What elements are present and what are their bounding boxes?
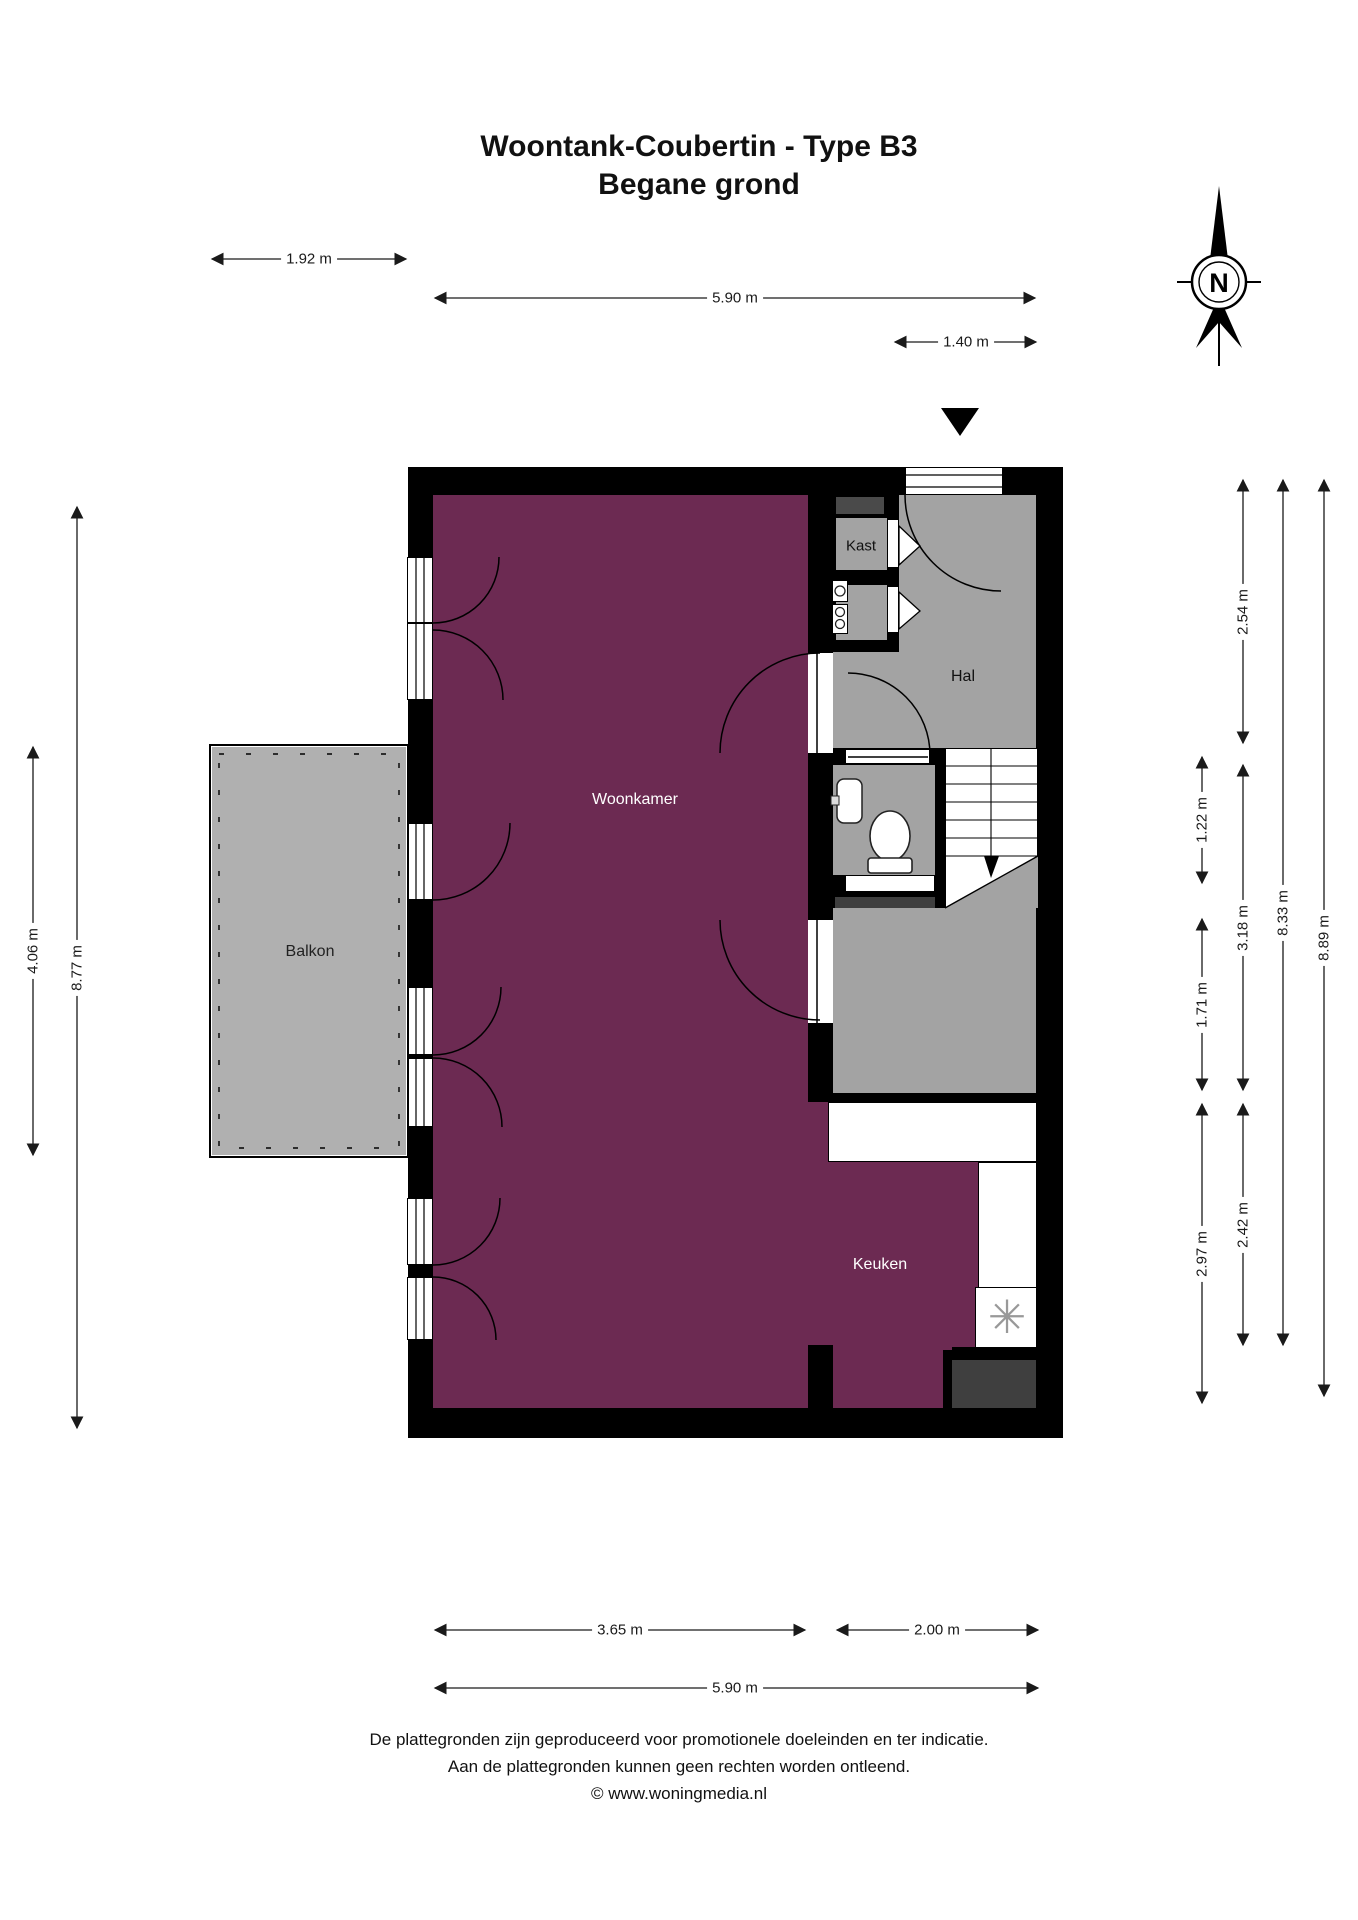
dim-bottom-2: 2.00 m: [909, 1622, 965, 1639]
hal-floor-lower: [833, 908, 1038, 1093]
window-2: [407, 623, 433, 700]
kast-shaft: [836, 497, 884, 514]
entrance-opening: [905, 467, 1003, 495]
dim-top-1: 1.92 m: [281, 251, 337, 268]
wc-duct-bar: [835, 897, 935, 908]
kitchen-counter-top: [828, 1102, 1037, 1162]
footer-copyright: © www.woningmedia.nl: [0, 1780, 1358, 1807]
window-5: [407, 1058, 433, 1127]
dim-right-8-89: 8.89 m: [1316, 910, 1333, 966]
window-4: [407, 987, 433, 1055]
hal-floor-upper: [899, 495, 1038, 748]
balkon-label: Balkon: [286, 943, 335, 961]
woonkamer-floor: [433, 495, 808, 1408]
dim-right-1-22: 1.22 m: [1194, 792, 1211, 848]
dim-top-3: 1.40 m: [938, 334, 994, 351]
wc-floor: [833, 765, 935, 875]
compass-letter: N: [1209, 268, 1229, 298]
meter-box-2: [832, 604, 848, 634]
window-1: [407, 557, 433, 623]
page-subtitle: Begane grond: [40, 168, 1358, 202]
kast-label: Kast: [846, 538, 876, 555]
meterkast-door: [887, 586, 899, 633]
dim-left-1: 4.06 m: [25, 923, 42, 979]
wc-shelf: [845, 875, 935, 892]
entrance-arrow-icon: [941, 408, 979, 436]
door-woonkamer-overloop: [808, 920, 833, 1023]
dim-right-8-33: 8.33 m: [1275, 885, 1292, 941]
meter-box-1: [832, 580, 848, 602]
window-7: [407, 1277, 433, 1340]
kitchen-hob: [975, 1287, 1037, 1348]
wall-hob-bottom: [952, 1347, 1036, 1360]
dim-right-2-97: 2.97 m: [1194, 1226, 1211, 1282]
dim-left-2: 8.77 m: [69, 940, 86, 996]
door-woonkamer-hal: [808, 653, 833, 753]
window-6: [407, 1198, 433, 1265]
compass-icon: N: [1177, 186, 1261, 366]
page-title: Woontank-Coubertin - Type B3: [40, 130, 1358, 164]
dim-right-2-54: 2.54 m: [1235, 584, 1252, 640]
dim-right-1-71: 1.71 m: [1194, 977, 1211, 1033]
floorplan-page: Woontank-Coubertin - Type B3 Begane gron…: [0, 0, 1358, 1920]
wall-stub-keuken: [808, 1345, 833, 1408]
woonkamer-label: Woonkamer: [592, 791, 678, 809]
footer-disclaimer-line1: De plattegronden zijn geproduceerd voor …: [0, 1726, 1358, 1753]
hal-label: Hal: [951, 668, 975, 686]
dim-top-2: 5.90 m: [707, 290, 763, 307]
dim-bottom-3: 5.90 m: [707, 1680, 763, 1697]
dim-right-2-42: 2.42 m: [1235, 1197, 1252, 1253]
wall-bottom: [408, 1408, 1063, 1438]
dim-right-3-18: 3.18 m: [1235, 900, 1252, 956]
wc-door: [845, 749, 930, 764]
hal-floor-mid: [833, 652, 899, 748]
dim-bottom-1: 3.65 m: [592, 1622, 648, 1639]
kast-door: [887, 519, 899, 568]
staircase: [945, 748, 1038, 908]
wall-right: [1036, 467, 1063, 1438]
window-3: [407, 823, 433, 900]
shaft-dark-rect: [952, 1360, 1036, 1408]
keuken-label: Keuken: [853, 1256, 907, 1274]
footer-disclaimer-line2: Aan de plattegronden kunnen geen rechten…: [0, 1753, 1358, 1780]
wall-hal-bottom: [833, 1093, 1038, 1102]
